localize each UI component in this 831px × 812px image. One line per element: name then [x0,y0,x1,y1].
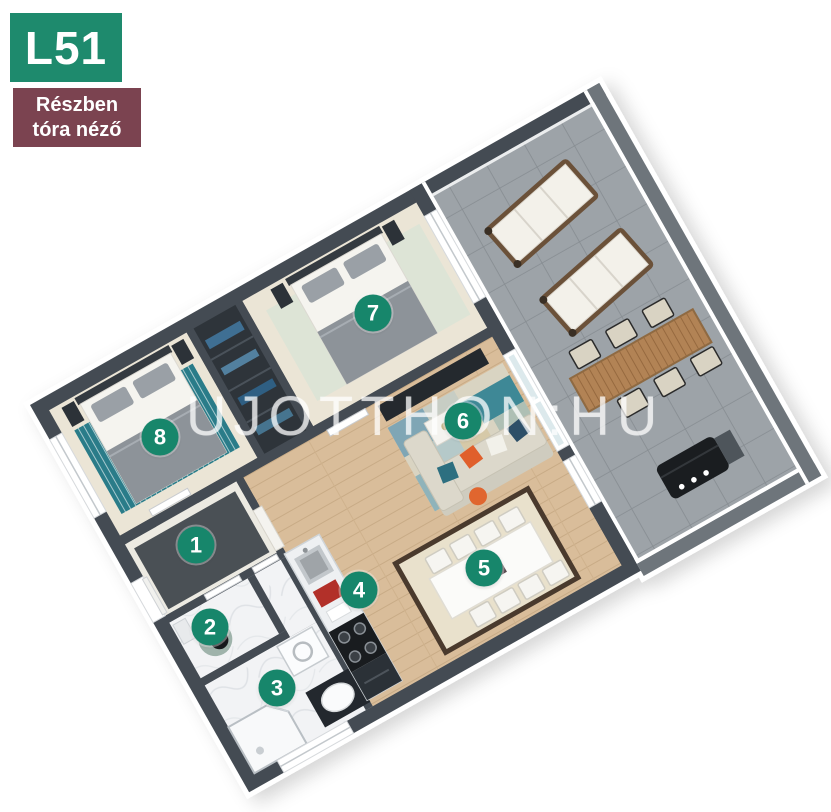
room-marker-6: 6 [445,403,482,440]
room-marker-1: 1 [178,527,215,564]
room-marker-2: 2 [192,609,229,646]
room-marker-7: 7 [355,295,392,332]
subtitle-line-1: Részben [36,93,118,118]
room-marker-3: 3 [259,670,296,707]
subtitle-line-2: tóra néző [33,118,122,143]
floor-plan-image: UJOTTHON:HU 1 2 3 4 5 6 7 8 L51 Részben … [0,0,831,812]
view-subtitle-badge: Részben tóra néző [13,88,141,147]
room-marker-8: 8 [142,419,179,456]
room-marker-5: 5 [466,550,503,587]
unit-badge: L51 [10,13,122,82]
room-marker-4: 4 [341,572,378,609]
